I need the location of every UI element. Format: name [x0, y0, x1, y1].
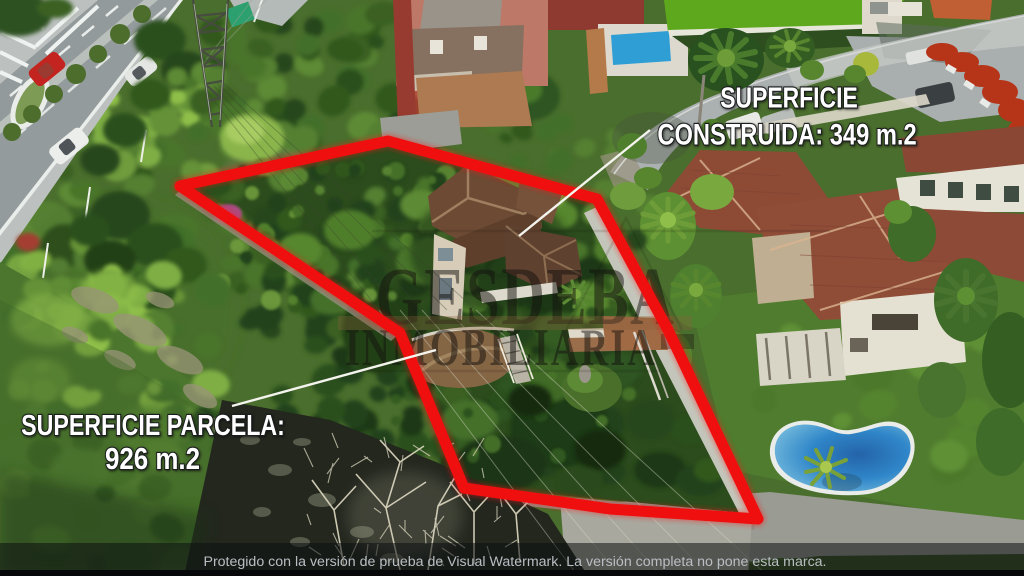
svg-text:SUPERFICIE: SUPERFICIE [720, 81, 857, 114]
svg-text:CONSTRUIDA: 349 m.2: CONSTRUIDA: 349 m.2 [657, 118, 916, 151]
svg-text:Protegido con la versión de pr: Protegido con la versión de prueba de Vi… [203, 554, 826, 570]
svg-text:SUPERFICIE PARCELA:: SUPERFICIE PARCELA: [21, 408, 285, 441]
svg-text:926 m.2: 926 m.2 [105, 441, 200, 475]
